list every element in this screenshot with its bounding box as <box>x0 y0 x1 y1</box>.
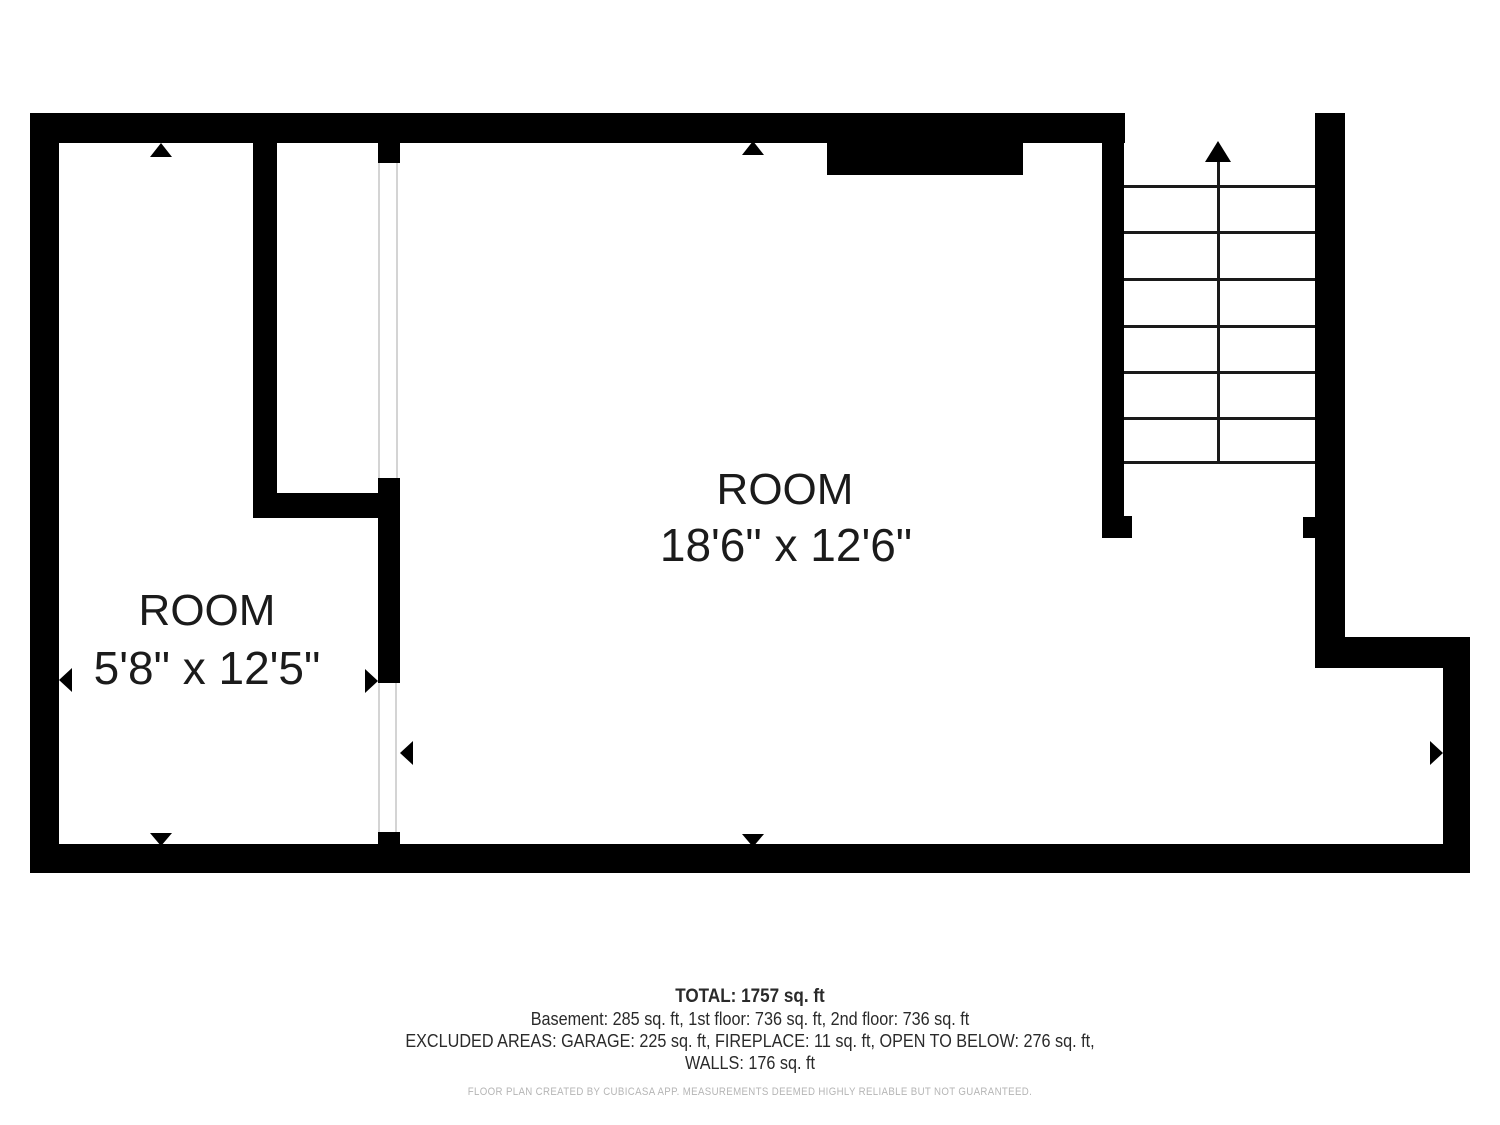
wall-closet-vertical <box>253 143 277 518</box>
room-large-name: ROOM <box>717 465 854 516</box>
disclaimer-text: FLOOR PLAN CREATED BY CUBICASA APP. MEAS… <box>90 1086 1410 1098</box>
stair-direction-up-arrow-icon <box>1205 141 1231 162</box>
marker-arrow-left-icon <box>400 741 413 765</box>
marker-arrow-right-icon <box>1430 741 1443 765</box>
room-small-dimensions: 5'8" x 12'5" <box>94 642 321 695</box>
marker-arrow-down-icon <box>150 833 172 846</box>
summary-total: TOTAL: 1757 sq. ft <box>75 986 1425 1008</box>
stair-center-line <box>1217 160 1220 464</box>
marker-arrow-left-icon <box>59 668 72 692</box>
area-summary: TOTAL: 1757 sq. ft Basement: 285 sq. ft,… <box>0 986 1500 1074</box>
stair-jamb-left <box>1124 516 1132 538</box>
stair-wall-left <box>1102 113 1124 538</box>
summary-floors: Basement: 285 sq. ft, 1st floor: 736 sq.… <box>75 1008 1425 1030</box>
wall-bottom <box>30 844 1470 873</box>
opening-line <box>378 683 380 832</box>
stair-jamb-right <box>1303 517 1315 538</box>
stair-wall-right <box>1315 113 1345 668</box>
marker-arrow-down-icon <box>742 834 764 847</box>
opening-line <box>396 163 398 478</box>
opening-line <box>378 163 380 478</box>
opening-line <box>395 683 397 832</box>
marker-arrow-right-icon <box>365 669 378 693</box>
wall-top <box>30 113 1125 143</box>
wall-partition-stub-top <box>378 143 400 163</box>
wall-partition-stub-bottom <box>378 832 400 852</box>
wall-far-right <box>1443 637 1470 873</box>
wall-left <box>30 113 59 873</box>
room-large-dimensions: 18'6" x 12'6" <box>660 519 912 572</box>
wall-fireplace <box>827 143 1023 175</box>
marker-arrow-up-icon <box>150 143 172 157</box>
summary-excluded-walls: WALLS: 176 sq. ft <box>75 1052 1425 1074</box>
summary-excluded-areas: EXCLUDED AREAS: GARAGE: 225 sq. ft, FIRE… <box>75 1030 1425 1052</box>
floor-plan-canvas: ROOM 5'8" x 12'5" ROOM 18'6" x 12'6" TOT… <box>0 0 1500 1125</box>
wall-partition-middle <box>378 478 400 683</box>
marker-arrow-up-icon <box>742 141 764 155</box>
room-small-name: ROOM <box>139 586 276 637</box>
